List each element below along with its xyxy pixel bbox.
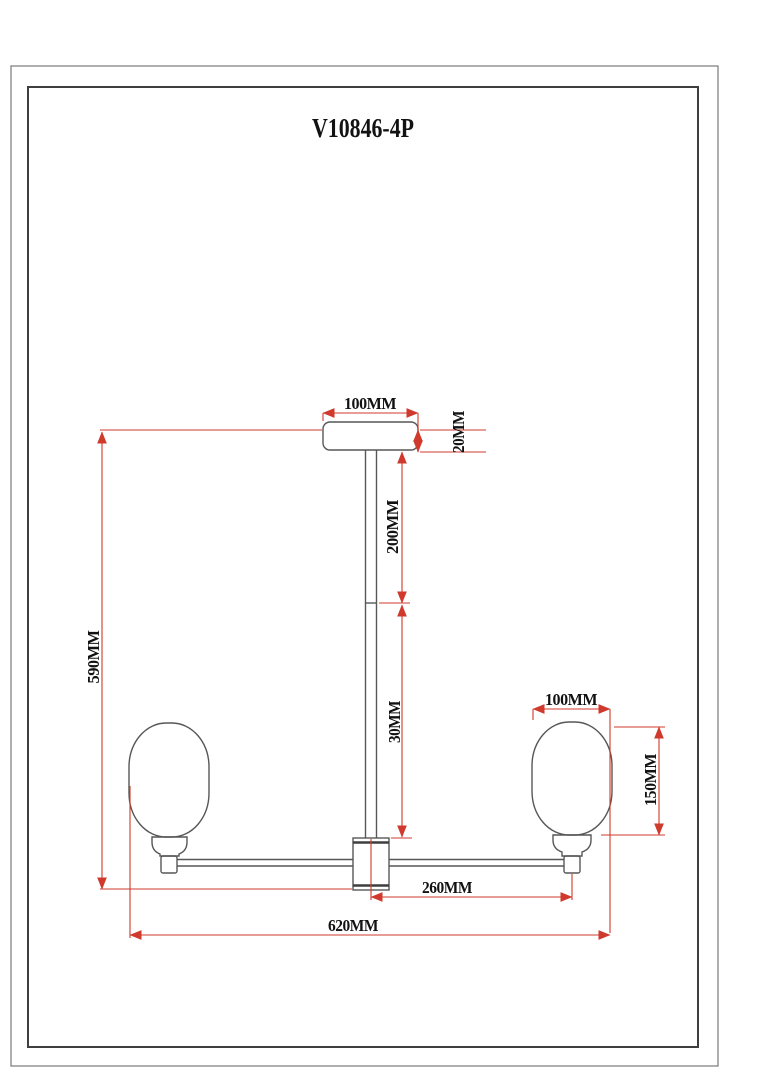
rod — [366, 450, 377, 838]
dim-shade-height: 150MM — [601, 727, 665, 835]
dim-upper-rod: 200MM — [379, 452, 410, 603]
dimension-diagram: V10846-4P — [0, 0, 763, 1080]
dim-label-shade-height: 150MM — [641, 754, 660, 806]
dim-label-total-height: 590MM — [84, 630, 103, 683]
dim-arm-center-to-shade: 260MM — [371, 839, 572, 900]
lamp-drawing — [129, 422, 612, 890]
dim-label-canopy-height: 20MM — [449, 411, 468, 453]
dim-total-height: 590MM — [84, 430, 352, 889]
left-shade — [129, 723, 209, 873]
dim-canopy-width: 100MM — [323, 394, 418, 452]
dim-label-arm-center: 260MM — [422, 878, 472, 897]
left-socket — [161, 856, 177, 873]
dim-label-lower-rod: 30MM — [385, 701, 404, 743]
drawing-page: V10846-4P — [0, 0, 763, 1080]
left-shade-holder — [152, 837, 187, 856]
dim-total-width: 620MM — [130, 786, 610, 938]
dim-label-canopy-width: 100MM — [344, 394, 396, 413]
dim-label-upper-rod: 200MM — [383, 500, 402, 554]
canopy — [323, 422, 418, 450]
dim-label-shade-width: 100MM — [545, 690, 597, 709]
right-socket — [564, 856, 580, 873]
dim-canopy-height: 20MM — [418, 411, 486, 453]
right-shade — [532, 722, 612, 873]
dim-label-total-width: 620MM — [328, 916, 378, 935]
right-shade-holder — [553, 835, 591, 856]
dim-lower-rod: 30MM — [385, 605, 412, 838]
model-number: V10846-4P — [312, 113, 414, 143]
inner-border — [28, 87, 698, 1047]
